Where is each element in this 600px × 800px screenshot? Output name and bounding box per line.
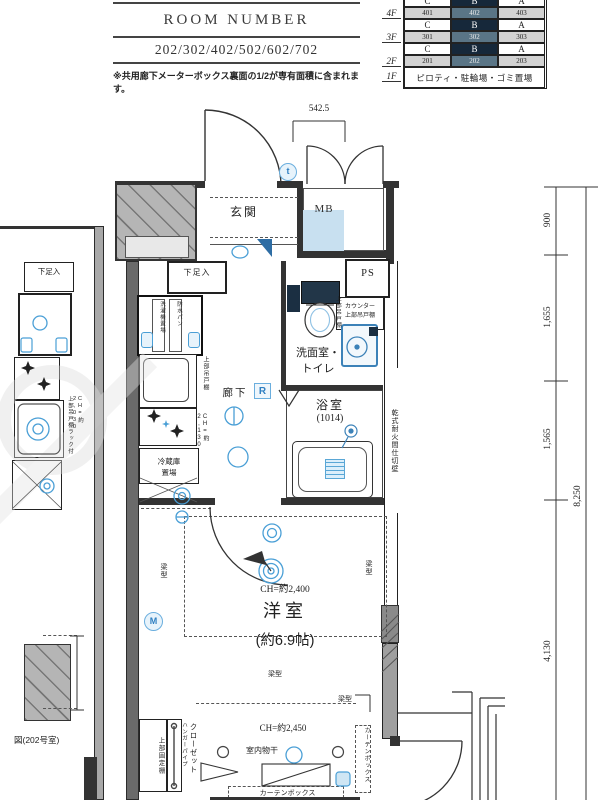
room-label-main: 洋室	[242, 597, 328, 623]
kitchen-sink	[143, 358, 189, 402]
wall-corridor-room-b	[288, 498, 300, 505]
header-note: ※共用廊下メーターボックス裏面の1/2が専有面積に含まれます。	[113, 70, 365, 95]
upper-shelf-label: 上部固定棚	[143, 724, 163, 788]
mb-wall-bottom	[297, 250, 392, 258]
cell-letter-a: A	[498, 43, 545, 55]
dim-1655: 1,655	[543, 297, 553, 337]
bl-dash-1	[43, 635, 77, 636]
washroom-cabinet-label: 上部吊戸棚	[330, 296, 340, 346]
cell-letter-b: B	[451, 0, 498, 7]
room-numbers: 202/302/402/502/602/702	[113, 42, 360, 58]
dim-top-label: 542.5	[292, 103, 346, 113]
room-label-bath-size: (1014)	[296, 413, 364, 424]
page-title: ROOM NUMBER	[113, 12, 360, 29]
firewall-label: 乾式耐火間仕切壁	[385, 368, 398, 513]
room-label-corridor: 廊下	[214, 385, 256, 400]
neighbor-ch-label: CH=約2,030	[72, 396, 82, 458]
dim-1565: 1,565	[543, 419, 553, 459]
table-letter-row-1: C B A	[404, 19, 546, 31]
window-frame	[382, 643, 398, 739]
room-label-ps: PS	[349, 268, 387, 279]
cell-303: 303	[498, 31, 545, 43]
corridor-step	[125, 236, 189, 258]
room-ref-label: 図(202号室)	[14, 734, 109, 746]
table-num-row-2f: 201 202 203	[404, 55, 546, 67]
wall-corridor-room-a	[139, 498, 215, 505]
closet-door	[201, 763, 238, 781]
door-hinge-block	[390, 736, 400, 746]
table-letter-row-top: C B A	[404, 0, 546, 7]
stove-box	[139, 408, 197, 446]
floor-label-3f: 3F	[382, 32, 401, 43]
room-label-washroom-1: 洗面室・	[280, 344, 356, 360]
balcony-lines	[398, 692, 505, 800]
right-dim-lines	[544, 187, 598, 800]
kitchen-cabinet-label: 上部吊戸棚	[197, 356, 208, 411]
room-label-bath: 浴室	[300, 396, 360, 413]
header-rule-2	[113, 62, 360, 64]
mb-double-doors	[307, 146, 383, 184]
corridor-dash-line	[141, 508, 211, 509]
kitchen-ch-label: CH=約2,130	[197, 414, 208, 474]
room-label-main-size: (約6.9帖)	[235, 629, 335, 650]
bl-dim-line	[70, 636, 84, 710]
neighbor-wall-bottom	[84, 757, 97, 800]
dim-8250: 8,250	[573, 476, 583, 516]
mb-fill	[303, 210, 344, 251]
beam-label-br: 梁型	[330, 694, 360, 704]
neighbor-fridge-box	[12, 460, 62, 510]
neighbor-shoe-box-label: 下足入	[27, 266, 71, 277]
cell-203: 203	[498, 55, 545, 67]
floor-label-1f: 1F	[382, 71, 401, 82]
washer-tap-right	[188, 332, 200, 348]
floor-label-4f: 4F	[382, 8, 401, 19]
cell-301: 301	[404, 31, 451, 43]
cell-403: 403	[498, 7, 545, 19]
cell-401: 401	[404, 7, 451, 19]
curtain-box-label-bottom: カーテンボックス	[240, 788, 335, 798]
floor-table: C B A 401 402 403 C B A 301 302 303 C B …	[403, 0, 547, 89]
bath-grate	[325, 459, 345, 479]
cell-letter-c: C	[404, 19, 451, 31]
mark-meter: M	[144, 612, 163, 631]
ch-closet-label: CH=約2,450	[243, 721, 323, 734]
genkan-step-dash-2	[210, 237, 298, 238]
dim-900: 900	[543, 200, 553, 240]
fridge-label-2: 置場	[141, 467, 197, 478]
stair-block	[24, 644, 71, 721]
neighbor-washer-box	[18, 293, 72, 356]
neighbor-sink-box	[14, 400, 64, 458]
outer-wall-top-right	[383, 181, 399, 188]
cell-202: 202	[451, 55, 498, 67]
cell-letter-b: B	[451, 43, 498, 55]
bl-dash-2	[43, 708, 77, 709]
beam-label-left: 梁型	[156, 563, 167, 593]
cell-1f-note: ピロティ・駐輪場・ゴミ置場	[404, 67, 545, 88]
dim-top-bracket	[293, 121, 345, 142]
counter-cabinet-label-2: 上部吊戸棚	[337, 310, 383, 319]
shoe-box-label: 下足入	[172, 267, 222, 278]
closet-label: クローゼット	[184, 723, 197, 785]
entrance-door-arc	[205, 110, 281, 186]
floor-label-2f: 2F	[382, 56, 401, 67]
floorplan-page: ROOM NUMBER 202/302/402/502/602/702 ※共用廊…	[0, 0, 600, 800]
washer-tap-left	[141, 332, 153, 348]
cell-402: 402	[451, 7, 498, 19]
outer-wall-top-mid	[277, 181, 303, 188]
mark-touch-key: t	[279, 163, 297, 181]
neighbor-corridor-wall	[0, 226, 96, 229]
genkan-step-edge	[210, 244, 298, 245]
table-row-1f: ピロティ・駐輪場・ゴミ置場	[404, 67, 546, 88]
washbasin-cabinet	[369, 327, 378, 336]
header-top-rule	[113, 2, 360, 4]
table-num-row-4f: 401 402 403	[404, 7, 546, 19]
dim-4130: 4,130	[543, 631, 553, 671]
cell-letter-c: C	[404, 0, 451, 7]
fridge-label-1: 冷蔵庫	[141, 456, 197, 467]
toilet-cistern	[287, 285, 300, 312]
cell-302: 302	[451, 31, 498, 43]
room-label-mb: MB	[303, 203, 345, 215]
room-label-genkan: 玄関	[213, 203, 275, 220]
cell-201: 201	[404, 55, 451, 67]
ch-main-label: CH=約2,400	[240, 581, 330, 595]
table-num-row-3f: 301 302 303	[404, 31, 546, 43]
genkan-step-dash-1	[210, 197, 298, 198]
counter-cabinet-label-1: カウンター	[337, 301, 383, 310]
balcony-door-arc	[396, 741, 462, 800]
genkan-cabinet	[257, 239, 272, 257]
mark-remote: R	[254, 383, 271, 399]
neighbor-stove-box	[14, 357, 60, 400]
beam-label-bottom: 梁型	[258, 669, 292, 679]
beam-label-right: 梁型	[361, 560, 372, 590]
closet-shelf	[262, 764, 330, 786]
outlet-box	[336, 772, 350, 786]
cell-letter-a: A	[498, 0, 545, 7]
cell-letter-a: A	[498, 19, 545, 31]
cell-letter-b: B	[451, 19, 498, 31]
curtain-box-label-right: カーテンボックス	[357, 727, 369, 791]
waterproof-pan-label: 防水パン	[170, 301, 181, 351]
indoor-laundry-label: 室内物干	[234, 745, 290, 756]
table-letter-row-2: C B A	[404, 43, 546, 55]
washer-label: 洗濯機置場	[153, 301, 164, 351]
header-rule-1	[113, 36, 360, 38]
room-label-washroom-2: トイレ	[280, 360, 356, 376]
party-wall-neighbor	[94, 226, 104, 800]
cell-letter-c: C	[404, 43, 451, 55]
